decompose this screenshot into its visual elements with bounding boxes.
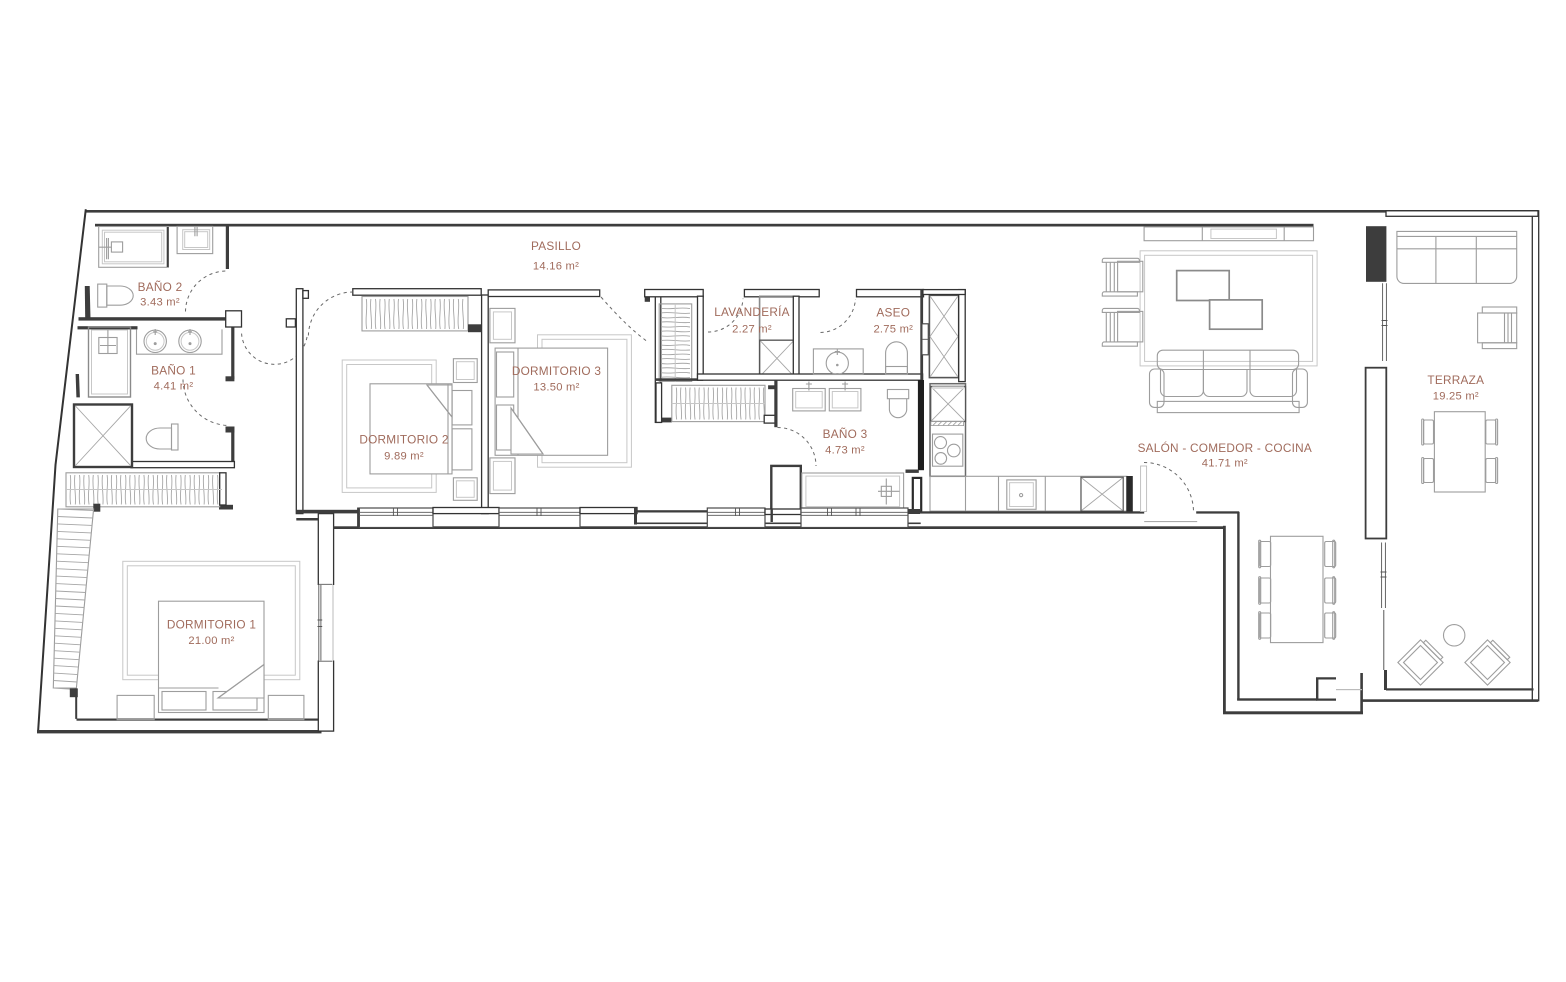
svg-text:4.41 m²: 4.41 m² xyxy=(154,381,194,393)
svg-text:BAÑO 1: BAÑO 1 xyxy=(151,364,196,378)
svg-text:TERRAZA: TERRAZA xyxy=(1427,373,1484,387)
svg-text:BAÑO 3: BAÑO 3 xyxy=(823,427,868,441)
svg-text:PASILLO: PASILLO xyxy=(531,239,581,253)
svg-text:2.75 m²: 2.75 m² xyxy=(873,324,913,336)
svg-text:LAVANDERÍA: LAVANDERÍA xyxy=(714,305,790,319)
svg-text:14.16 m²: 14.16 m² xyxy=(533,261,579,273)
svg-text:21.00 m²: 21.00 m² xyxy=(188,635,234,647)
svg-text:DORMITORIO 2: DORMITORIO 2 xyxy=(359,433,448,447)
svg-text:DORMITORIO 1: DORMITORIO 1 xyxy=(167,617,256,631)
svg-text:BAÑO 2: BAÑO 2 xyxy=(138,280,183,294)
svg-text:ASEO: ASEO xyxy=(876,305,910,319)
svg-text:DORMITORIO 3: DORMITORIO 3 xyxy=(512,364,601,378)
svg-text:41.71 m²: 41.71 m² xyxy=(1202,458,1248,470)
svg-text:13.50 m²: 13.50 m² xyxy=(533,382,579,394)
svg-text:9.89 m²: 9.89 m² xyxy=(384,450,424,462)
svg-text:SALÓN - COMEDOR - COCINA: SALÓN - COMEDOR - COCINA xyxy=(1138,441,1312,455)
svg-text:19.25 m²: 19.25 m² xyxy=(1433,391,1479,403)
svg-text:4.73 m²: 4.73 m² xyxy=(825,445,865,457)
svg-text:2.27 m²: 2.27 m² xyxy=(732,324,772,336)
svg-text:3.43 m²: 3.43 m² xyxy=(140,297,180,309)
